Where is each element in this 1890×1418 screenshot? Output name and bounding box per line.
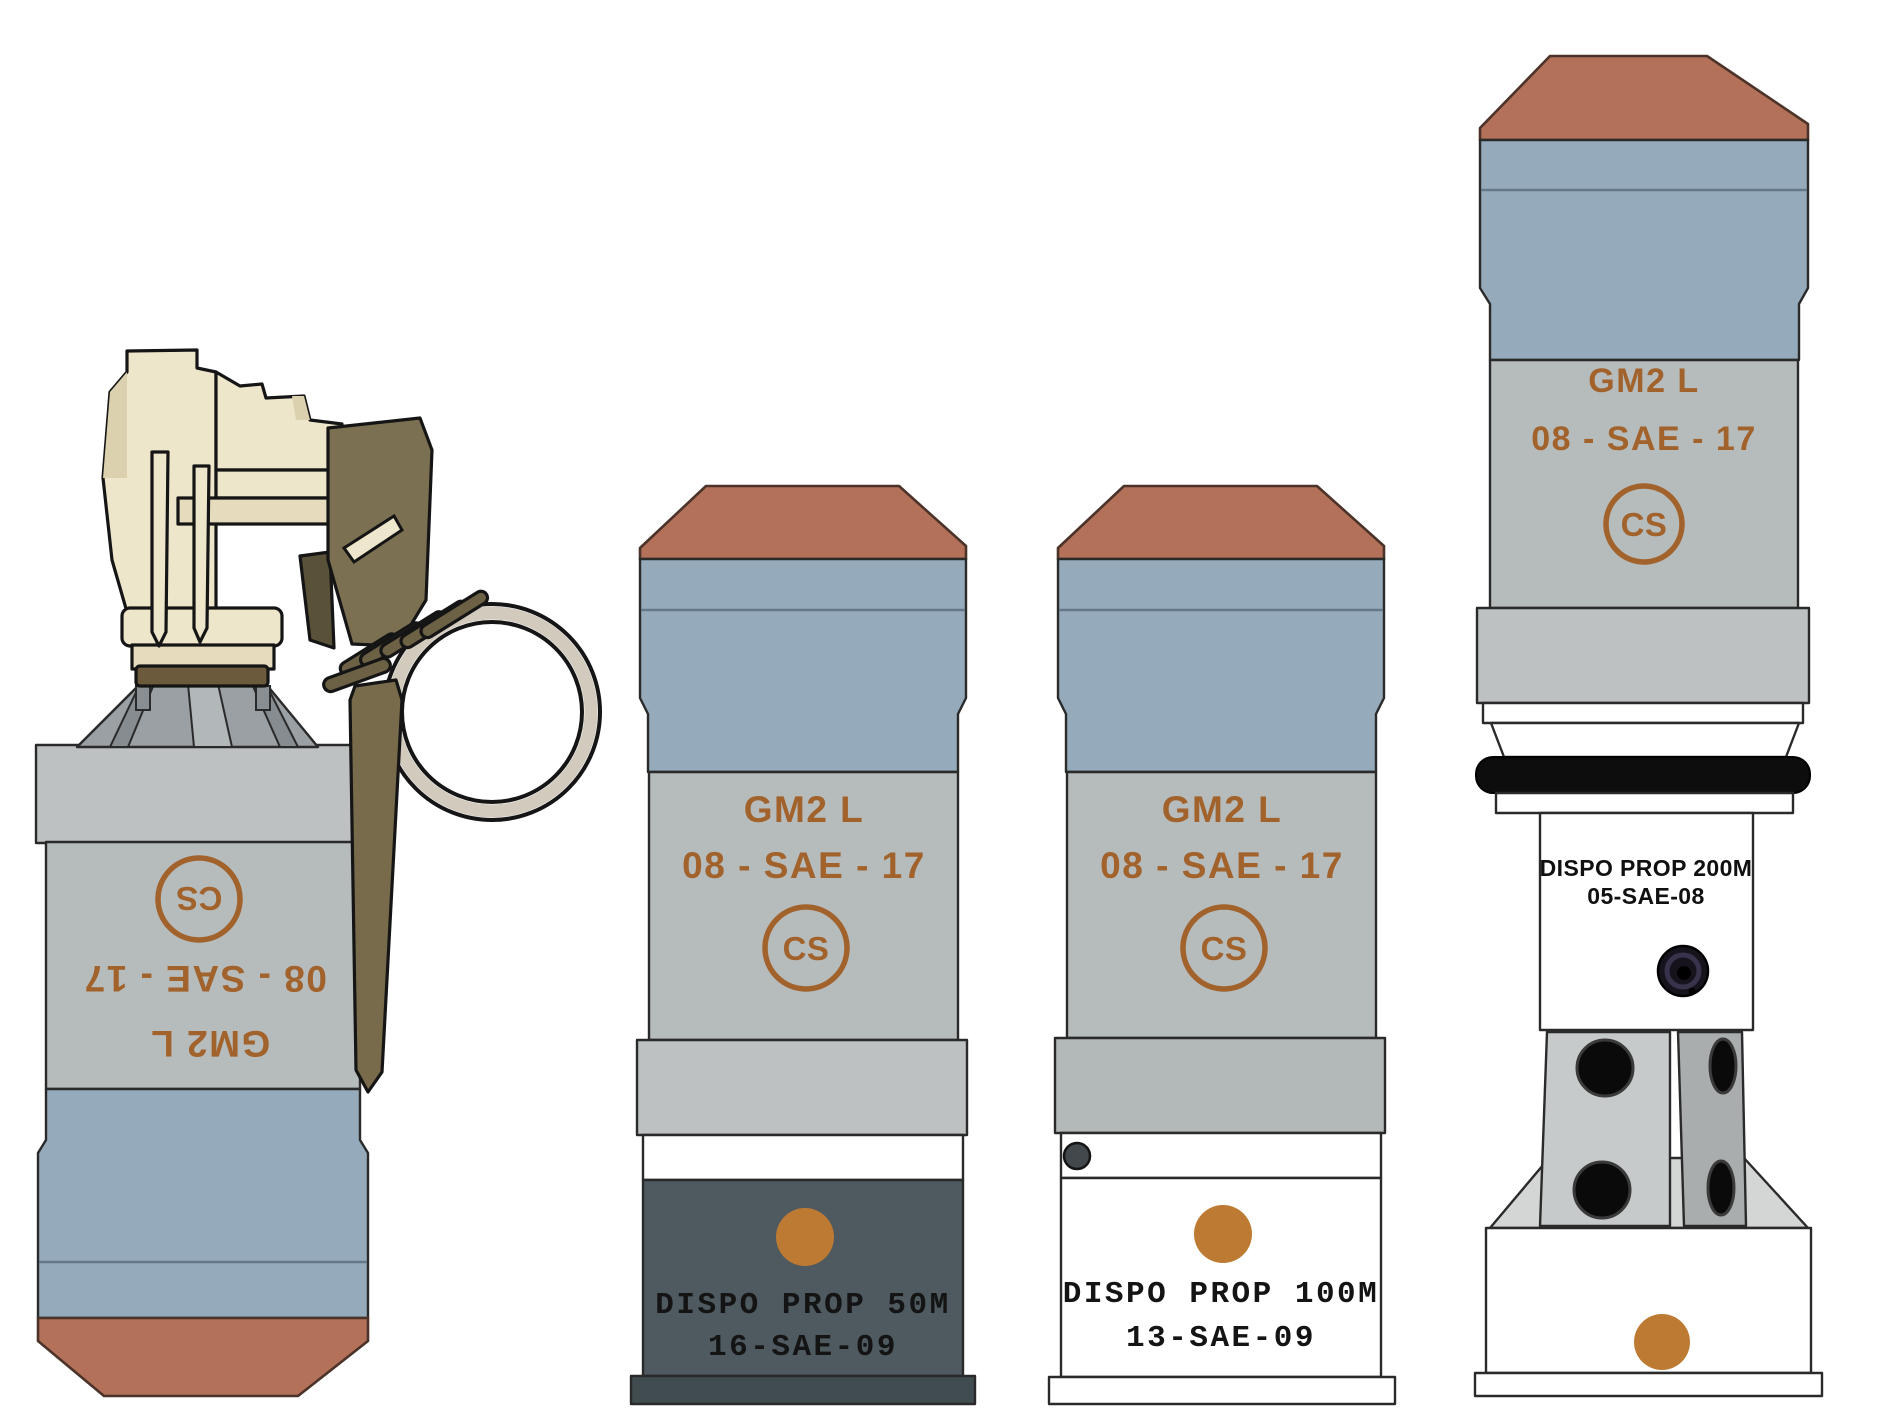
tail-base-plate (1475, 1373, 1822, 1396)
grenade-gm2l-100m: GM2 L 08 - SAE - 17 CS DISPO PROP 100M 1… (1049, 486, 1395, 1404)
grenade4-cap (1480, 56, 1808, 140)
grenade1-cap (38, 1318, 368, 1396)
model-label: GM2 L (1162, 789, 1283, 830)
grenade2-cap (640, 486, 966, 559)
lot-label: 08 - SAE - 17 (83, 958, 327, 999)
grenade3-blue-band (1058, 559, 1384, 772)
model-label: GM2 L (150, 1023, 271, 1064)
tail-prong-right (1678, 1032, 1746, 1226)
prop-label: DISPO PROP 50M (655, 1288, 950, 1323)
grenade2-white-stripe (643, 1135, 963, 1180)
grenade4-tail-unit (1475, 1032, 1822, 1396)
grenade3-collar (1055, 1038, 1385, 1133)
prop-lot-label: 13-SAE-09 (1126, 1321, 1316, 1356)
agent-label: CS (783, 930, 830, 967)
grenade4-collar (1477, 608, 1809, 703)
grenade1-fin-cone (77, 684, 318, 747)
tail-prong-left (1540, 1032, 1670, 1226)
prop-lot-label: 16-SAE-09 (708, 1330, 898, 1365)
grenade4-funnel (1491, 723, 1799, 757)
orange-dot (1194, 1205, 1252, 1263)
grenade4-blue-band (1480, 140, 1808, 360)
grenade3-prop-section: DISPO PROP 100M 13-SAE-09 (1061, 1133, 1381, 1377)
vent-hole-icon (1658, 946, 1708, 996)
grenade4-white-band (1483, 703, 1803, 723)
grenade2-base-flange (631, 1376, 975, 1404)
grenade1-blue-band (38, 1089, 368, 1318)
grenade4-prop-cylinder: DISPO PROP 200M 05-SAE-08 (1540, 813, 1753, 1030)
lot-label: 08 - SAE - 17 (682, 845, 926, 886)
lot-label: 08 - SAE - 17 (1531, 420, 1756, 458)
prop-label: DISPO PROP 100M (1063, 1277, 1380, 1312)
primer-dot (1064, 1143, 1090, 1169)
grenade-gm2l-200m: GM2 L 08 - SAE - 17 CS DISPO PROP 200M 0… (1475, 56, 1822, 1396)
agent-label: CS (1201, 930, 1248, 967)
grenade1-collar (36, 745, 368, 843)
model-label: GM2 L (1588, 362, 1699, 400)
grenade3-base-flange (1049, 1377, 1395, 1404)
fuze-assembly (103, 350, 342, 686)
agent-label: CS (1621, 506, 1668, 543)
orange-dot (776, 1208, 834, 1266)
munitions-diagram: CS 08 - SAE - 17 GM2 L (0, 0, 1890, 1418)
grenade-gm2l-50m: GM2 L 08 - SAE - 17 CS DISPO PROP 50M 16… (631, 486, 975, 1404)
grenade2-collar (637, 1040, 967, 1135)
grenade4-oring (1476, 757, 1810, 793)
grenade-gm2l-hand: CS 08 - SAE - 17 GM2 L (36, 350, 600, 1396)
agent-label: CS (176, 880, 223, 917)
orange-dot (1634, 1314, 1690, 1370)
prop-label: DISPO PROP 200M (1540, 855, 1753, 881)
lot-label: 08 - SAE - 17 (1100, 845, 1344, 886)
model-label: GM2 L (744, 789, 865, 830)
grenade3-white-band (1061, 1133, 1381, 1178)
grenade2-prop-section: DISPO PROP 50M 16-SAE-09 (643, 1180, 963, 1376)
grenade2-blue-band (640, 559, 966, 772)
grenade3-cap (1058, 486, 1384, 559)
grenade4-flange (1496, 793, 1793, 813)
prop-lot-label: 05-SAE-08 (1587, 883, 1704, 909)
